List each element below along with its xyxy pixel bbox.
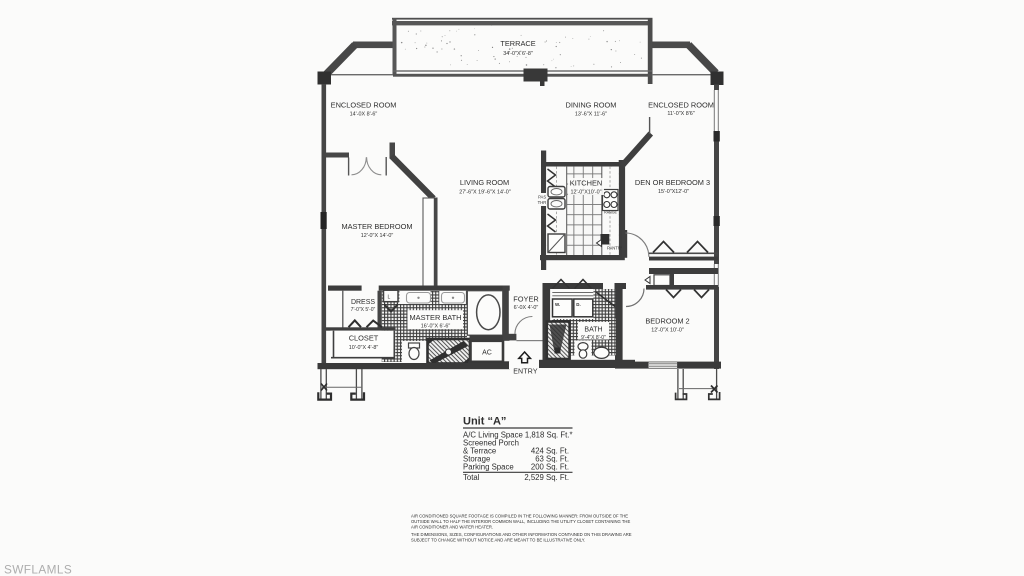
svg-text:6'-0X 4'-0": 6'-0X 4'-0" (514, 305, 539, 311)
svg-text:ENTRY: ENTRY (513, 369, 538, 376)
svg-text:PANTRY: PANTRY (607, 246, 624, 251)
svg-text:OUTSIDE WALL TO HALF THE INTER: OUTSIDE WALL TO HALF THE INTERIOR COMMON… (411, 519, 630, 524)
svg-text:2,529 Sq. Ft.: 2,529 Sq. Ft. (524, 473, 569, 482)
svg-text:12'-0"X 14'-0": 12'-0"X 14'-0" (361, 233, 394, 239)
svg-text:12'-0"X 10'-0": 12'-0"X 10'-0" (651, 328, 684, 334)
svg-text:10'-0"X 4'-8": 10'-0"X 4'-8" (349, 345, 379, 351)
svg-text:Total: Total (463, 473, 480, 482)
svg-text:MASTER BATH: MASTER BATH (409, 313, 461, 322)
svg-text:LIVING ROOM: LIVING ROOM (460, 178, 509, 187)
svg-text:12'-0"X10'-0": 12'-0"X10'-0" (570, 190, 601, 196)
svg-text:ENCLOSED ROOM: ENCLOSED ROOM (331, 101, 397, 110)
svg-text:15'-0"X12'-0": 15'-0"X12'-0" (658, 189, 689, 195)
svg-text:W.: W. (555, 302, 560, 307)
svg-text:DINING ROOM: DINING ROOM (566, 101, 617, 110)
svg-text:14'-0X 8'-6": 14'-0X 8'-6" (350, 112, 378, 118)
svg-text:FOYER: FOYER (513, 295, 538, 304)
svg-text:27'-6"X 19'-6"X 14'-0": 27'-6"X 19'-6"X 14'-0" (459, 190, 510, 196)
svg-text:DEN OR BEDROOM 3: DEN OR BEDROOM 3 (635, 178, 710, 187)
svg-text:ENCLOSED ROOM: ENCLOSED ROOM (648, 101, 714, 110)
svg-text:D.: D. (576, 302, 580, 307)
svg-text:BEDROOM 2: BEDROOM 2 (645, 317, 689, 326)
svg-text:SWFLAMLS: SWFLAMLS (4, 563, 72, 576)
svg-text:TERRACE: TERRACE (500, 39, 535, 48)
svg-text:9'-4"X 8'-0": 9'-4"X 8'-0" (581, 335, 606, 341)
svg-text:Parking Space: Parking Space (463, 462, 514, 471)
svg-text:AIR CONDITIONED SQUARE FOOTAGE: AIR CONDITIONED SQUARE FOOTAGE IS COMPIL… (411, 514, 628, 519)
svg-text:AIR CONDITIONER AND WATER HEAT: AIR CONDITIONER AND WATER HEATER. (411, 525, 493, 530)
svg-text:34'-0"X 6'-8": 34'-0"X 6'-8" (503, 51, 533, 57)
svg-text:AC: AC (482, 350, 492, 357)
svg-text:1,818 Sq. Ft.*: 1,818 Sq. Ft.* (525, 430, 573, 439)
svg-text:CLOSET: CLOSET (349, 334, 379, 343)
svg-text:13'-6"X 11'-6": 13'-6"X 11'-6" (575, 112, 607, 118)
svg-text:11'-0"X 8'6": 11'-0"X 8'6" (667, 111, 694, 117)
svg-text:Unit “A”: Unit “A” (463, 416, 506, 428)
svg-text:SUBJECT TO CHANGE WITHOUT NOTI: SUBJECT TO CHANGE WITHOUT NOTICE AND ARE… (411, 538, 585, 543)
svg-text:KITCHEN: KITCHEN (570, 179, 602, 188)
svg-text:RANGE: RANGE (604, 211, 617, 215)
svg-text:MASTER BEDROOM: MASTER BEDROOM (341, 222, 412, 231)
svg-text:DRESS: DRESS (351, 299, 375, 306)
svg-text:THE DIMENSIONS, SIZES, CONFIGU: THE DIMENSIONS, SIZES, CONFIGURATIONS AN… (411, 532, 632, 537)
svg-text:L: L (388, 294, 391, 300)
svg-text:BATH: BATH (584, 327, 602, 334)
svg-text:200 Sq. Ft.: 200 Sq. Ft. (531, 462, 569, 471)
svg-text:7'-0"X 5'-0": 7'-0"X 5'-0" (351, 307, 376, 313)
svg-text:16'-0"X 6'-6": 16'-0"X 6'-6" (421, 324, 451, 330)
